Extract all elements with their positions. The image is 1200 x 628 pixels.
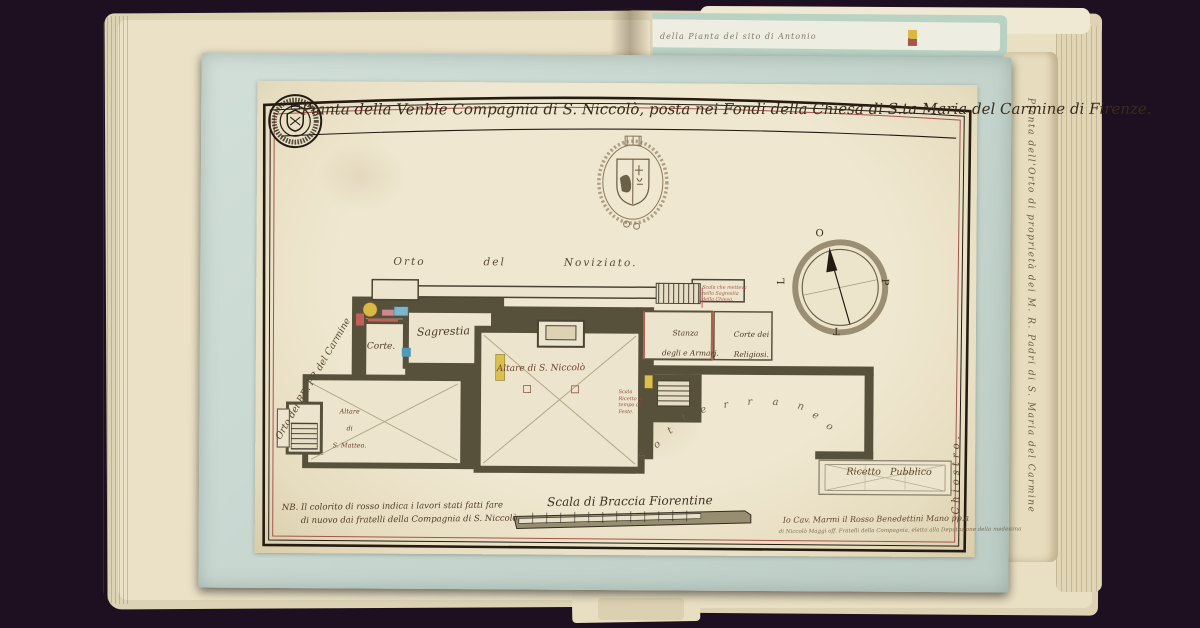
room-corte: Corte. [367, 342, 395, 353]
plate-title: Pianta della Venble Compagnia di S. Nicc… [301, 100, 961, 119]
drawing-sheet: Pianta della Venble Compagnia di S. Nicc… [255, 81, 978, 557]
compass-letter-west: P [877, 279, 890, 286]
scanned-book-photo: della Pianta del sito di Antonio Pianta … [0, 0, 1200, 628]
signature-line2: di Niccolò Maggi off. Fratelli della Com… [779, 526, 1022, 536]
room-corte-religiosi: Corte dei Religiosi. [712, 320, 772, 371]
cartouche-crest [599, 136, 668, 229]
compass-letter-south: O [816, 228, 824, 241]
top-page-caption: della Pianta del sito di Antonio [660, 32, 817, 42]
floor-plan-svg [255, 81, 978, 557]
area-chiostro: Chiostro. [951, 423, 964, 523]
page-flag-mark [908, 30, 917, 46]
signature-line1: Io Cav. Marmi il Rosso Benedettini Mano … [783, 514, 969, 526]
side-page-caption: Pianta dell'Orto di proprietà dei M. R. … [1024, 56, 1035, 556]
sotterraneo-letter: a [772, 397, 779, 408]
left-page-edges [103, 16, 131, 604]
scale-bar [514, 509, 751, 529]
note-scala-sagrestia: Scala che metteva nella Sagrestia della … [702, 286, 764, 305]
area-orto-noviziato: Orto del Noviziato. [393, 256, 637, 271]
room-altare-niccolo: Altare di S. Niccolò [497, 363, 586, 375]
compass-letter-east: L [776, 278, 789, 285]
sotterraneo-letter: r [747, 397, 752, 408]
bottom-page-edge-2 [598, 598, 684, 620]
note-ricetto-feste: Scala Ricetto in tempo di Feste. [618, 389, 660, 415]
scale-caption: Scala di Braccia Fiorentine [525, 493, 735, 510]
compass-letter-north: T [833, 323, 840, 336]
room-sagrestia: Sagrestia [417, 324, 470, 339]
compass-rose [795, 242, 886, 333]
plate-blue-sheet: Pianta della Venble Compagnia di S. Nicc… [198, 53, 1011, 593]
room-altare-matteo: Altare di S. Matteo. [315, 399, 367, 458]
white-strip-page: della Pianta del sito di Antonio [640, 19, 1000, 51]
room-ricetto-pubblico: Ricetto Pubblico [829, 466, 949, 479]
room-stanza-armarj: Stanza degli e Armarj. [643, 318, 709, 369]
